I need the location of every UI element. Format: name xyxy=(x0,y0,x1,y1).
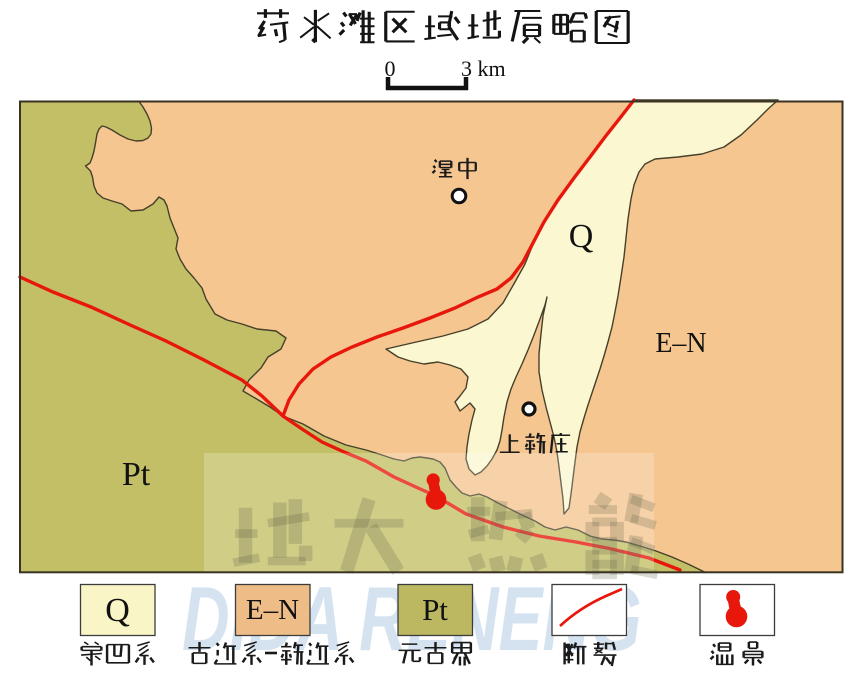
svg-text:E–N: E–N xyxy=(246,594,299,626)
svg-text:Q: Q xyxy=(105,592,130,629)
svg-text:Pt: Pt xyxy=(422,592,448,627)
svg-text:Pt: Pt xyxy=(122,456,151,493)
svg-text:E–N: E–N xyxy=(655,328,706,359)
svg-text:Q: Q xyxy=(569,218,594,255)
